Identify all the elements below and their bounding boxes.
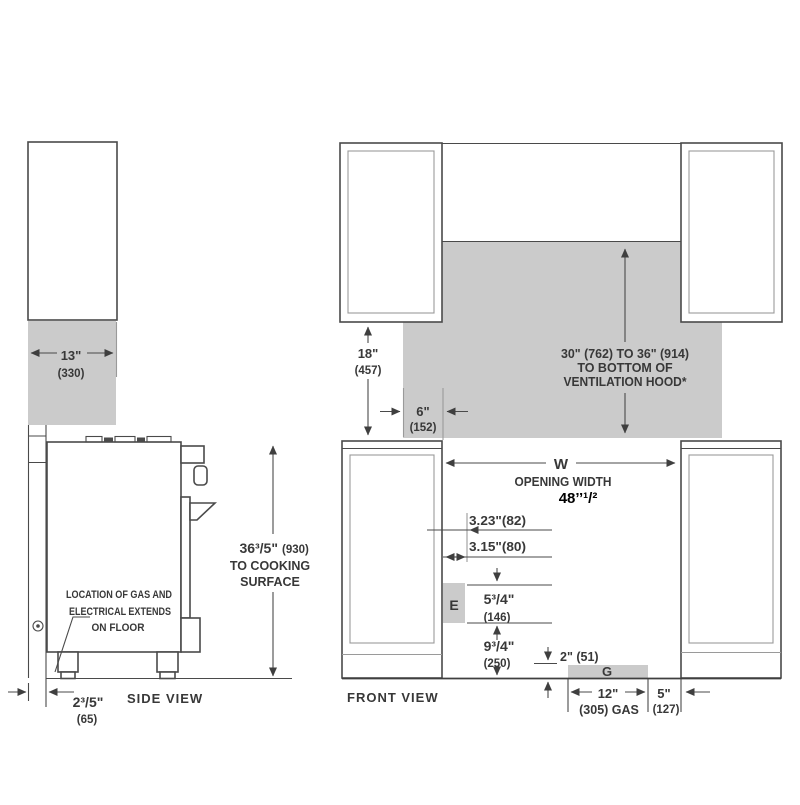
wall-gap-metric: (65) [77,714,98,726]
cabinet-depth-metric: (330) [58,368,85,380]
gas-side-inches: 5" [657,686,670,701]
hood-clearance-inches: 18" [358,346,379,361]
dim-hood-clearance: 18" (457) [355,327,382,435]
gas-width-inches: 12" [598,686,619,701]
control-knob [194,466,207,485]
gas-side-metric: (127) [653,704,680,716]
upper-cabinet-left [340,143,442,322]
gas-connection-icon-dot [36,624,40,628]
electrical-height-metric: (146) [484,612,511,624]
height-note-2: SURFACE [240,575,300,589]
note-line-1: LOCATION OF GAS AND [66,589,172,601]
note-line-2: ELECTRICAL EXTENDS [69,606,171,618]
height-note-1: TO COOKING [230,559,310,573]
dim-electrical-offsets: 3.23"(82) 3.15"(80) [427,513,552,562]
burner-grate-1 [86,437,102,443]
height-metric: (930) [282,544,309,556]
door-handle [190,503,215,520]
gas-height: 2" (51) [560,650,599,664]
upper-cabinet-right [681,143,782,322]
hood-height-line-1: 30" (762) TO 36" (914) [561,347,689,361]
installation-diagram: 13" (330) [0,0,800,800]
dim-cooking-surface-height: 36³/5" (930) TO COOKING SURFACE [230,446,310,676]
electrical-floor-metric: (250) [484,658,511,670]
electrical-symbol: E [449,597,458,613]
side-view: 13" (330) [8,142,310,726]
side-upper-cabinet [28,142,117,320]
front-view-label: FRONT VIEW [347,690,439,705]
hood-height-line-3: VENTILATION HOOD* [564,375,687,389]
diagram-canvas: 13" (330) [0,0,800,800]
burner-grate-2 [115,437,135,443]
hood-clearance-zone [403,242,722,438]
wall-gap-inches: 2³/5" [73,694,104,710]
dim-wall-gap: 2³/5" (65) [8,683,103,726]
front-view: 18" (457) 30" (762) TO 36" (914) TO BOTT… [340,143,782,717]
burner-grate-3 [147,437,171,443]
control-panel [181,446,204,463]
note-line-3: ON FLOOR [92,622,145,634]
burner-cap-2 [137,438,145,443]
opening-width-symbol: W [554,456,569,473]
burner-cap-1 [104,438,113,443]
range-foot-left-pad [61,672,75,679]
gas-location: 2" (51) G [534,647,648,698]
oven-door [181,497,190,618]
base-cabinet-left [342,441,442,678]
range-side-profile [47,437,215,679]
range-foot-right-pad [160,672,175,679]
electrical-location: E 5³/4" (146) 9³/4" (250) [443,568,552,675]
electrical-height-inches: 5³/4" [484,591,515,607]
base-cabinet-right [681,441,781,678]
opening-width-label: OPENING WIDTH [515,475,612,489]
hood-overhang-metric: (152) [410,422,437,434]
upper-cabinet-left-outer [340,143,442,322]
drawer-front [181,618,200,652]
electrical-offset-a: 3.23"(82) [469,513,526,528]
range-body [47,442,181,652]
dim-gas-width: 12" (305) GAS 5" (127) [568,679,710,717]
cabinet-depth-inches: 13" [61,348,82,363]
dim-opening-width: W OPENING WIDTH 48’’¹/² [446,456,675,507]
range-foot-right [157,652,178,672]
side-view-label: SIDE VIEW [127,691,203,706]
hood-clearance-metric: (457) [355,365,382,377]
hood-height-line-2: TO BOTTOM OF [577,361,673,375]
upper-cabinet-right-outer [681,143,782,322]
hood-overhang-inches: 6" [416,404,429,419]
height-inches: 36³/5" [239,540,278,556]
electrical-floor-inches: 9³/4" [484,638,515,654]
gas-symbol: G [602,664,612,679]
opening-width-value: 48’’¹/² [559,490,598,507]
wall [29,425,47,707]
gas-width-metric: (305) GAS [579,703,639,717]
electrical-offset-b: 3.15"(80) [469,539,526,554]
